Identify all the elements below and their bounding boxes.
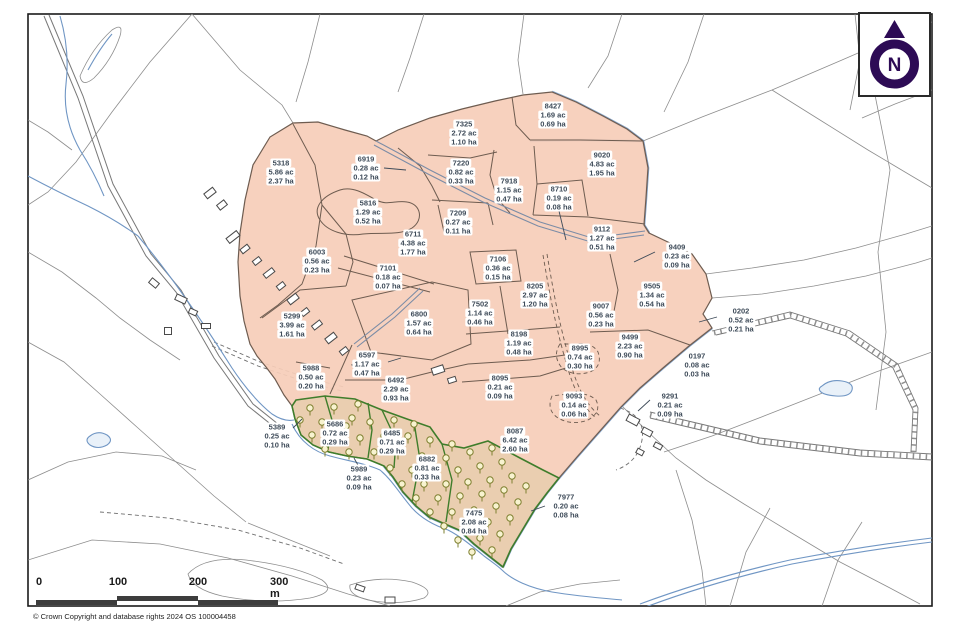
scale-tick-0: 0 [36, 576, 42, 588]
scale-tick-200: 200 [189, 576, 207, 588]
map-canvas: 53185.86 ac2.37 ha69190.28 ac0.12 ha7325… [0, 0, 958, 637]
copyright-notice: © Crown Copyright and database rights 20… [33, 612, 236, 621]
scale-tick-100: 100 [109, 576, 127, 588]
scale-bar-track [36, 596, 278, 606]
north-arrow-label: N [888, 55, 902, 76]
north-arrow-icon: N [860, 14, 929, 95]
north-arrow: N [858, 12, 931, 97]
scale-bar: 0 100 200 300 m [30, 576, 300, 610]
map-drawing [0, 0, 958, 637]
